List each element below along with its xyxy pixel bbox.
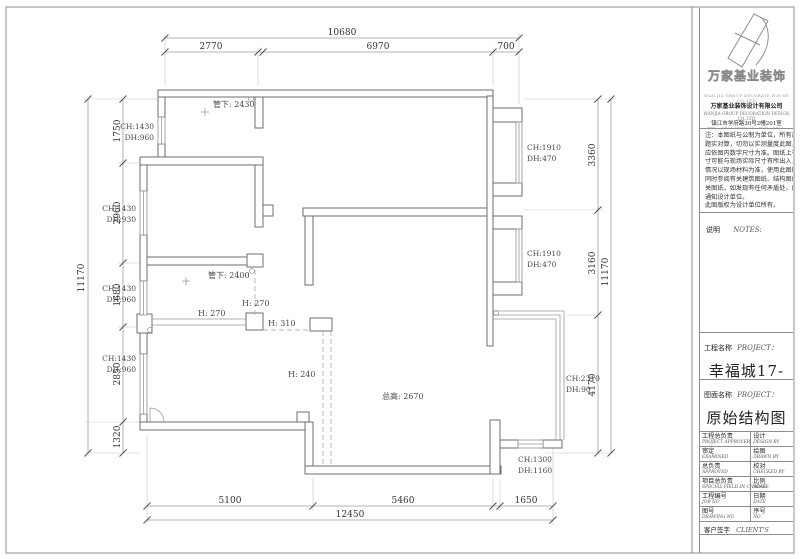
table-row: 工程编号JOB NO 日期DATE [700,492,793,507]
beam-label: H: 270 [242,299,269,308]
drawing-sheet: 10680 2770 6970 700 11170 1750 2960 1680… [0,0,800,559]
drawing-label-zh: 图面名称 [704,391,732,399]
company-logo: 万家基业装饰 [702,11,792,89]
drawing-name-section: 图面名称 PROJECT： 原始结构图 [700,380,793,432]
notes-label-en: NOTES: [733,226,762,234]
beam-label: H: 270 [198,309,225,318]
notes-area: 说明 NOTES: [700,213,793,333]
title-block: 万家基业装饰 WAN JIA GROUP DECORATE HOUSE CO.,… [699,8,793,553]
dim-right-1: 3360 [588,143,598,166]
balcony-label: DH:90 [566,385,591,394]
drawing-name: 原始结构图 [704,407,789,428]
dim-right-2: 3160 [588,251,598,274]
balcony-glazing [493,311,564,440]
balcony-label: CH:2310 [566,374,600,383]
brand-outline-text: 万家基业装饰 [706,68,785,83]
dim-bottom-2: 5460 [392,496,415,506]
win-label: CH:1300 [518,455,552,464]
ceiling-height-label: 总高: 2670 [382,391,424,401]
table-row: 工程总负责PROJECT APPROVER 设计DESIGN BY [700,432,793,447]
company-address: 镇江市学府路30号2幢201室 [700,121,793,128]
win-label: CH:1430 [102,284,136,293]
win-label: DH:470 [527,154,557,163]
company-name: 万家基业装饰设计有限公司 [700,103,793,111]
brand-english: WAN JIA GROUP DECORATE HOUSE CO.,LTD [700,93,793,103]
dim-left-total: 11170 [77,263,87,292]
win-label: DH:470 [527,260,557,269]
project-name-section: 工程名称 PROJECT： 幸福城17-403 [700,333,793,380]
signature-table: 工程总负责PROJECT APPROVER 设计DESIGN BY 审定EXAM… [700,432,793,522]
company-name-english: WANJIA GROUP DECORATION DESIGN CO.,LTD [700,111,793,121]
win-label: CH:1910 [527,143,561,152]
dim-top-1: 2770 [200,42,223,52]
project-label-zh: 工程名称 [704,344,732,352]
win-label: DH:930 [107,215,137,224]
client-label-zh: 客户签字 [704,526,730,534]
table-row: 总负责APPROVED 校对CHECKED BY [700,462,793,477]
dim-left-5: 1320 [113,425,123,448]
project-label-en: PROJECT： [737,344,778,352]
win-label: DH:1160 [518,466,552,475]
dim-top-3: 700 [497,42,514,52]
beam-label: H: 240 [288,370,315,379]
dim-top-total: 10680 [328,28,357,38]
pipe-height-label: 管下: 2430 [213,99,255,109]
beam-label: H: 310 [268,319,295,328]
plan-annotations: CH:1430 DH:960 CH:1430 DH:930 CH:1430 DH… [102,99,600,475]
door-swing-arc [150,408,164,422]
table-row: 审定EXAMINED 绘图DRAWN BY [700,447,793,462]
win-label: DH:960 [125,133,155,142]
win-label: CH:1430 [102,204,136,213]
pipe-height-label: 管下: 2400 [208,270,250,280]
project-name: 幸福城17-403 [704,360,789,380]
table-row: 图号DRAWING NO 序号NO. [700,507,793,522]
notes-label-zh: 说明 [706,226,720,234]
dim-right-total: 11170 [601,257,611,286]
win-label: DH:960 [107,295,137,304]
win-label: CH:1430 [102,354,136,363]
dim-bottom-total: 12450 [336,510,365,520]
client-signature: 客户签字 CLIENT'S [700,522,793,535]
win-label: CH:1430 [120,122,154,131]
table-row: 项目总负责SPECIAL FIELD IN CHARGE 比例SCALE [700,477,793,492]
dim-bottom-3: 1650 [515,496,538,506]
company-header: 万家基业装饰 WAN JIA GROUP DECORATE HOUSE CO.,… [700,8,793,129]
win-label: DH:960 [107,365,137,374]
dim-top-2: 6970 [367,42,390,52]
drawing-label-en: PROJECT： [737,391,778,399]
floor-plan-drawing: 10680 2770 6970 700 11170 1750 2960 1680… [0,0,800,559]
general-notes: 注：本图纸与公制为单位，所有尺寸间 题实对算，切勿以实测量度此图，一切 应依图内… [700,129,793,213]
client-label-en: CLIENT'S [736,526,769,534]
walls [137,90,562,474]
dim-bottom-1: 5100 [219,496,242,506]
win-label: CH:1910 [527,249,561,258]
